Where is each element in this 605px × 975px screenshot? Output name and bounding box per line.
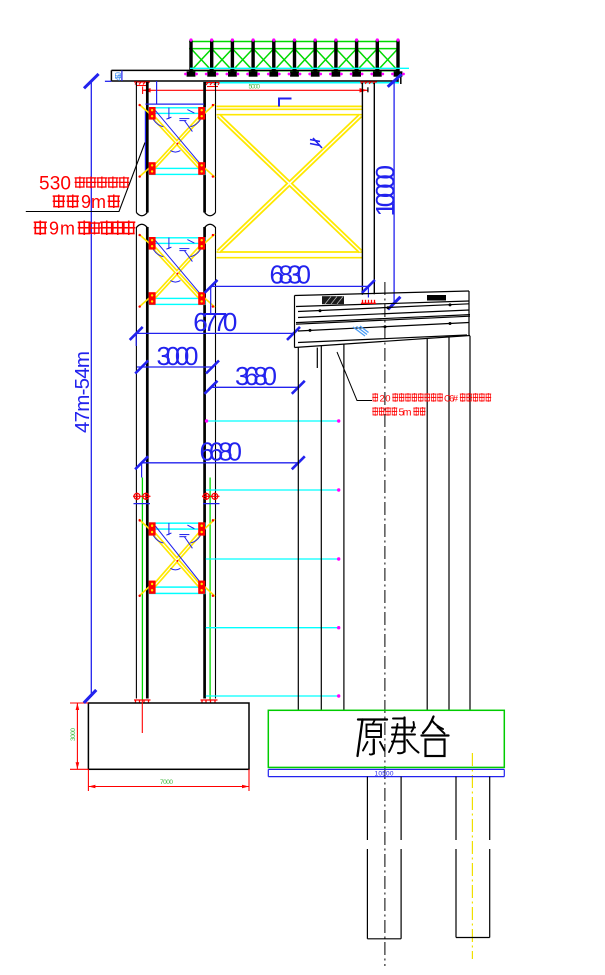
svg-text:3000: 3000: [70, 728, 77, 741]
svg-text:6830: 6830: [270, 260, 312, 290]
svg-text:7000: 7000: [160, 779, 173, 786]
svg-text:9m: 9m: [49, 219, 75, 239]
svg-text:10000: 10000: [370, 165, 400, 217]
svg-text:530: 530: [39, 174, 71, 195]
svg-text:3000: 3000: [157, 341, 199, 371]
svg-text:10500: 10500: [375, 771, 394, 778]
svg-text:5000: 5000: [249, 84, 261, 91]
svg-text:6770: 6770: [193, 307, 237, 337]
svg-text:5m: 5m: [399, 407, 412, 419]
svg-text:3680: 3680: [235, 361, 277, 391]
svg-text:6680: 6680: [200, 436, 243, 466]
svg-text:C6#: C6#: [444, 394, 459, 405]
svg-text:9m: 9m: [81, 192, 106, 212]
svg-text:47m-54m: 47m-54m: [71, 351, 94, 433]
